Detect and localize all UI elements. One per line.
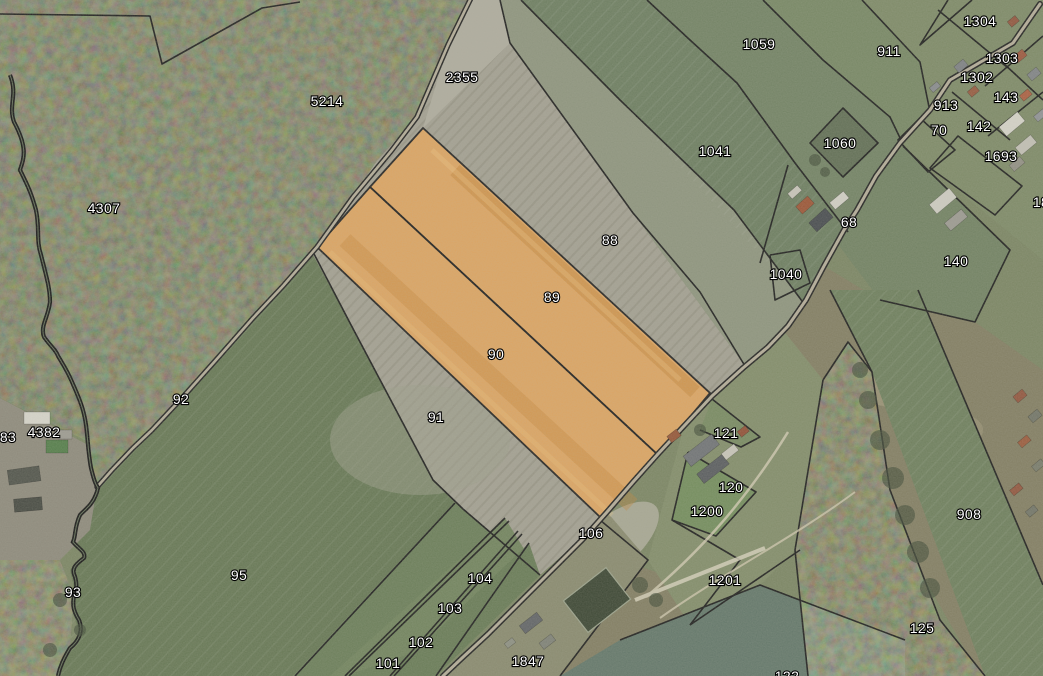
parcel-label-125: 125 (910, 620, 935, 636)
parcel-label-120: 120 (719, 479, 744, 495)
parcel-label-1693: 1693 (985, 148, 1018, 164)
parcel-label-91: 91 (428, 409, 444, 425)
parcel-label-2355: 2355 (446, 69, 479, 85)
parcel-label-93: 93 (65, 584, 81, 600)
parcel-label-88: 88 (602, 232, 618, 248)
parcel-label-102: 102 (409, 634, 434, 650)
parcel-label-913: 913 (934, 97, 959, 113)
imagery-grain-overlay (0, 0, 1043, 676)
parcel-label-1041: 1041 (699, 143, 732, 159)
parcel-label-908: 908 (957, 506, 982, 522)
parcel-label-122: 122 (775, 668, 800, 676)
parcel-label-1060: 1060 (824, 135, 857, 151)
parcel-label-911: 911 (877, 43, 901, 59)
parcel-label-89: 89 (544, 289, 560, 305)
parcel-label-5214: 5214 (311, 93, 344, 109)
parcel-label-1040: 1040 (770, 266, 803, 282)
map-canvas[interactable]: 1304105991113032355130214391352141427010… (0, 0, 1043, 676)
parcel-label-106: 106 (579, 525, 604, 541)
parcel-label-90: 90 (488, 346, 504, 362)
parcel-label-1302: 1302 (961, 69, 994, 85)
parcel-label-95: 95 (231, 567, 247, 583)
parcel-label-70: 70 (931, 122, 947, 138)
parcel-label-1304: 1304 (964, 13, 997, 29)
parcel-label-101: 101 (376, 655, 401, 671)
parcel-label-1303: 1303 (986, 50, 1019, 66)
parcel-label-104: 104 (468, 570, 493, 586)
parcel-label-1059: 1059 (743, 36, 776, 52)
parcel-label-1200: 1200 (691, 503, 724, 519)
parcel-label-1201: 1201 (709, 572, 742, 588)
map-viewport[interactable]: 1304105991113032355130214391352141427010… (0, 0, 1043, 676)
parcel-label-103: 103 (438, 600, 463, 616)
parcel-label-140: 140 (944, 253, 969, 269)
parcel-label-68: 68 (841, 214, 857, 230)
parcel-label-92: 92 (173, 391, 189, 407)
parcel-label-121: 121 (714, 425, 739, 441)
parcel-label-18: 18 (1033, 194, 1043, 210)
parcel-label-1847: 1847 (512, 653, 545, 669)
parcel-label-142: 142 (967, 118, 992, 134)
parcel-label-4382: 4382 (28, 424, 61, 440)
parcel-label-143: 143 (994, 89, 1019, 105)
parcel-label-4307: 4307 (88, 200, 121, 216)
parcel-label-83: 83 (0, 429, 16, 445)
